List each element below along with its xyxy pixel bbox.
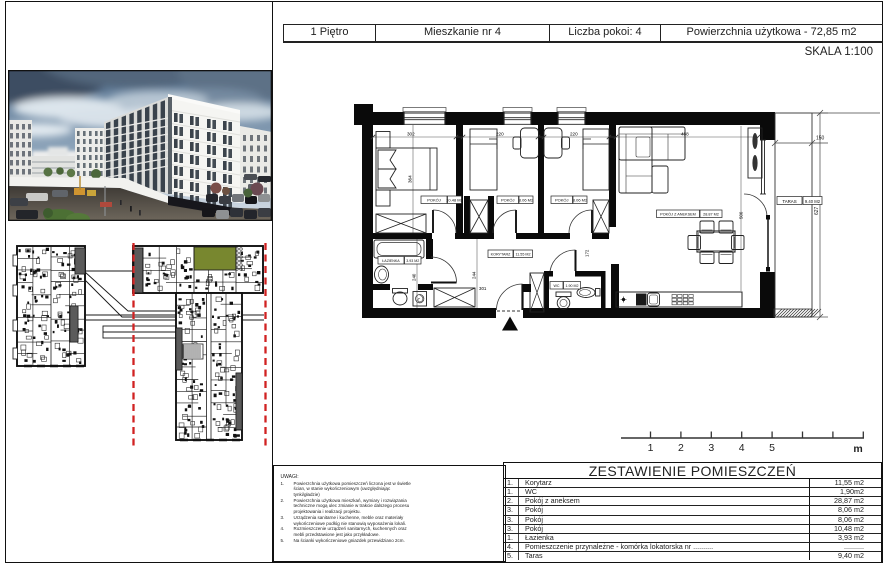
svg-text:11.55 M2: 11.55 M2 xyxy=(515,252,530,256)
svg-text:3: 3 xyxy=(708,442,714,454)
svg-text:8.06 M2: 8.06 M2 xyxy=(573,197,588,202)
svg-text:TARAS: TARAS xyxy=(782,199,796,204)
svg-text:1: 1 xyxy=(648,442,654,454)
svg-text:244: 244 xyxy=(472,271,477,279)
svg-text:m: m xyxy=(853,443,862,455)
svg-text:9.40 M2: 9.40 M2 xyxy=(805,199,821,204)
svg-text:172: 172 xyxy=(585,249,590,257)
svg-text:POKÓJ Z ANEKSEM: POKÓJ Z ANEKSEM xyxy=(660,211,696,216)
svg-text:4: 4 xyxy=(739,442,745,454)
svg-text:2: 2 xyxy=(678,442,684,454)
svg-text:5: 5 xyxy=(769,442,775,454)
svg-text:302: 302 xyxy=(407,132,415,137)
svg-text:220: 220 xyxy=(570,132,578,137)
svg-text:POKÓJ: POKÓJ xyxy=(427,197,441,202)
svg-text:3.93 M2: 3.93 M2 xyxy=(406,259,419,263)
svg-text:627: 627 xyxy=(814,206,820,215)
svg-text:WC: WC xyxy=(554,284,560,288)
svg-text:240: 240 xyxy=(412,273,417,281)
svg-text:POKÓJ: POKÓJ xyxy=(555,197,569,202)
svg-text:KORYTARZ: KORYTARZ xyxy=(491,252,511,256)
svg-text:1.90 M2: 1.90 M2 xyxy=(566,284,579,288)
svg-text:10.48 M2: 10.48 M2 xyxy=(446,197,463,202)
svg-text:364: 364 xyxy=(408,175,413,183)
svg-text:301: 301 xyxy=(479,286,487,291)
svg-text:ŁAZIENKA: ŁAZIENKA xyxy=(382,259,400,263)
svg-text:506: 506 xyxy=(739,211,744,219)
svg-text:8.06 M2: 8.06 M2 xyxy=(519,197,534,202)
svg-text:POKÓJ: POKÓJ xyxy=(501,197,515,202)
svg-text:150: 150 xyxy=(816,136,825,142)
svg-text:28.87 M2: 28.87 M2 xyxy=(703,212,719,216)
